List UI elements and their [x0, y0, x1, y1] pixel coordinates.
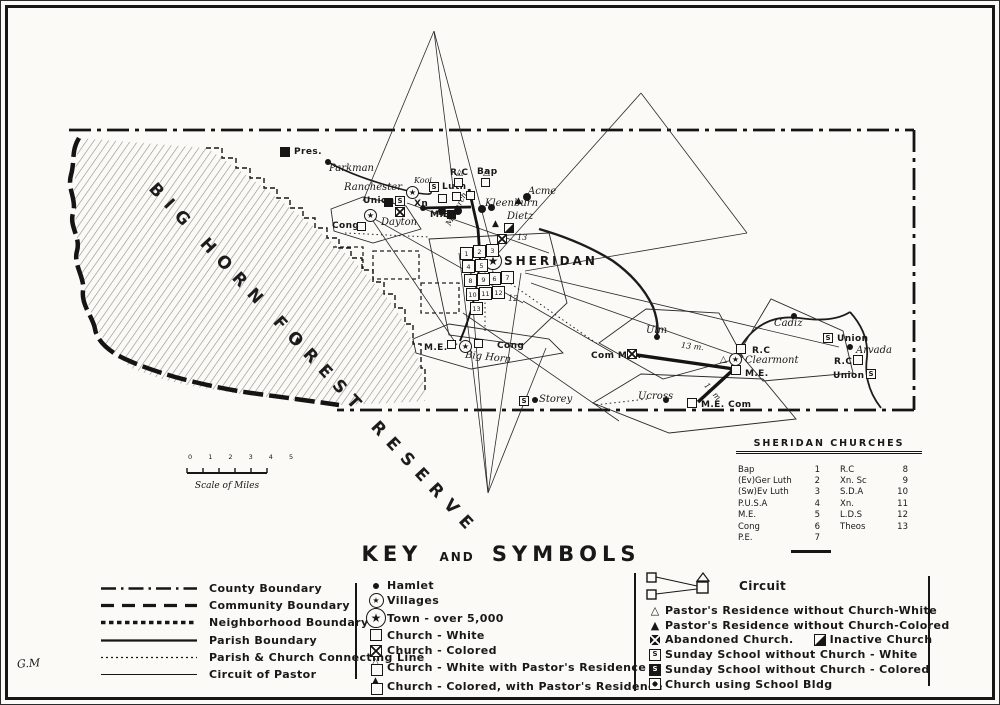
table-row: P.U.S.A4: [738, 498, 820, 509]
inactive-church-icon: [814, 634, 826, 646]
hamlet-dot-camp-4: [478, 205, 486, 213]
table-row: M.E.5: [738, 510, 820, 521]
sheridan-church-9: 9: [477, 273, 490, 286]
table-row: R.C8: [840, 464, 908, 475]
sheridan-church-8: 8: [464, 274, 477, 287]
circuit-label: Circuit: [739, 579, 786, 593]
churches-table-left-column: Bap1 (Ev)Ger Luth2 (Sw)Ev Luth3 P.U.S.A4…: [738, 464, 820, 544]
label-cadiz: Cadiz: [774, 318, 802, 329]
sunday-school-symbol-luth: S: [429, 182, 439, 192]
church-symbol-rc-arvada: [853, 355, 863, 365]
hamlet-dot-storey: [532, 397, 538, 403]
village-symbol-bighorn: ★: [459, 340, 472, 353]
church-colored-with-residence-icon: ▲: [370, 678, 382, 695]
label-acme: Acme: [528, 186, 556, 197]
legend-row-sunday-school-white: S Sunday School without Church - White: [645, 647, 950, 662]
legend-row-church-using-school: Church using School Bldg: [645, 677, 950, 692]
pastor-residence-icon-bap-top: △: [483, 169, 490, 178]
legend-row-abandoned-inactive: Abandoned Church. Inactive Church: [645, 633, 950, 648]
pastor-residence-icon-clearmont: △: [720, 356, 727, 365]
label-clearmont: Clearmont: [745, 355, 798, 366]
legend-row-church-colored: Church - Colored: [365, 643, 663, 658]
sheridan-churches-table: SHERIDAN CHURCHES Bap1 (Ev)Ger Luth2 (Sw…: [734, 438, 930, 459]
legend-row-villages: ★ Villages: [365, 593, 663, 608]
neighborhood-boundary-sample-icon: [99, 618, 199, 627]
church-symbol-cong-bighorn: [474, 339, 483, 348]
label-cong-dayton: Cong: [332, 221, 359, 231]
church-using-school-icon: [649, 678, 661, 690]
church-white-icon: [370, 629, 382, 641]
pastor-residence-icon-dietz: ▲: [492, 220, 499, 229]
churches-table-right-column: R.C8 Xn. Sc9 S.D.A10 Xn.11 L.D.S12 Theos…: [840, 464, 908, 532]
sunday-school-symbol-union-nw: S: [395, 196, 405, 206]
church-symbol-dayton-area-1: [384, 198, 393, 207]
church-symbol-me-bighorn: [447, 340, 456, 349]
label-sheridan: SHERIDAN: [504, 254, 598, 268]
table-row: Xn. Sc9: [840, 475, 908, 486]
sunday-school-symbol-arvada-n: S: [823, 333, 833, 343]
town-icon: ★: [366, 608, 386, 628]
key-title: KEY AND SYMBOLS: [1, 542, 1000, 566]
village-symbol-ranchester: ★: [406, 186, 419, 199]
village-symbol-dayton: ★: [364, 209, 377, 222]
legend-row-sunday-school-colored: S Sunday School without Church - Colored: [645, 662, 950, 677]
church-symbol-cong-dayton: [357, 222, 366, 231]
community-boundary-sample-icon: [99, 601, 199, 610]
church-symbol-colored-dietz: [497, 234, 507, 244]
scale-bar-line: [184, 467, 270, 476]
circuit-line-sample-icon: [99, 670, 199, 679]
hamlet-dot-camp-1: [420, 205, 426, 211]
sheridan-church-2: 2: [473, 245, 486, 258]
hamlet-dot-arvada: [847, 344, 853, 350]
label-union-arvada-s: Union: [833, 371, 864, 381]
legend-row-pastor-residence-white: △ Pastor's Residence without Church-Whit…: [645, 603, 950, 618]
table-row: (Ev)Ger Luth2: [738, 475, 820, 486]
church-symbol-kooi-3: [466, 191, 475, 200]
church-symbol-com-me-ulm: [627, 349, 637, 359]
label-pres: Pres.: [294, 147, 322, 157]
sheridan-church-13: 13: [470, 302, 483, 315]
abandoned-church-icon: [650, 635, 660, 645]
label-12: 12: [508, 294, 518, 303]
sheridan-church-3: 3: [486, 244, 499, 257]
church-symbol-me-clearmont: [731, 365, 741, 375]
map-sheet: Pres. Parkman Ranchester Union Kooi Cong…: [0, 0, 1000, 705]
legend-row-circuit: Circuit: [645, 569, 950, 603]
church-symbol-dayton-area-2: [395, 207, 405, 217]
key-title-and: AND: [439, 550, 474, 564]
hamlet-dot-kleenburn: [488, 204, 495, 211]
legend-places: Hamlet ★ Villages ★ Town - over 5,000 Ch…: [365, 578, 663, 696]
sheridan-church-10: 10: [466, 288, 479, 301]
sunday-school-symbol-arvada-s: S: [866, 369, 876, 379]
sheridan-church-4: 4: [462, 260, 475, 273]
church-symbol-camp: [447, 210, 456, 219]
church-symbol-kooi-2: [452, 192, 461, 201]
churches-table-title: SHERIDAN CHURCHES: [736, 438, 922, 454]
label-me-com: M.E. Com: [701, 400, 751, 410]
parish-boundary-sample-icon: [99, 636, 199, 645]
hamlet-dot-camp-2: [438, 207, 446, 215]
sunday-school-colored-icon: S: [649, 664, 661, 676]
village-icon: ★: [369, 593, 384, 608]
sunday-school-white-icon: S: [649, 649, 661, 661]
circuit-diagram-icon: [645, 570, 725, 602]
sheridan-church-12: 12: [492, 286, 505, 299]
label-me-bighorn: M.E.: [424, 343, 448, 353]
table-row: Theos13: [840, 521, 908, 532]
hamlet-dot-ulm: [654, 334, 660, 340]
label-13: 13: [517, 233, 527, 242]
sheridan-church-1: 1: [460, 247, 473, 260]
church-symbol-rc-top: [454, 178, 463, 187]
church-symbol-pres: [280, 147, 290, 157]
label-dayton: Dayton: [381, 217, 417, 228]
sheridan-church-11: 11: [479, 287, 492, 300]
legend-row-hamlet: Hamlet: [365, 578, 663, 593]
scale-label: Scale of Miles: [184, 481, 270, 491]
legend-symbols: Circuit △ Pastor's Residence without Chu…: [645, 569, 950, 692]
hamlet-dot-ucross: [663, 397, 669, 403]
legend-row-town: ★ Town - over 5,000: [365, 609, 663, 628]
sheridan-church-7: 7: [501, 271, 514, 284]
peak-mark-icon: ▲: [295, 336, 300, 343]
label-me-clearmont: M.E.: [745, 369, 769, 379]
sheridan-church-5: 5: [475, 259, 488, 272]
scale-bar: 0 1 2 3 4 5 Scale of Miles: [184, 453, 270, 491]
hamlet-dot-acme: [523, 193, 531, 201]
table-row: S.D.A10: [840, 487, 908, 498]
sunday-school-symbol-storey: S: [519, 396, 529, 406]
pastor-residence-white-icon: △: [651, 605, 659, 616]
label-rc-arvada: R.C: [834, 357, 852, 367]
legend-row-pastor-residence-colored: ▲ Pastor's Residence without Church-Colo…: [645, 618, 950, 633]
label-dietz: Dietz: [507, 211, 533, 222]
scale-ticks: 0 1 2 3 4 5: [188, 453, 270, 461]
label-union-arvada-n: Union: [837, 334, 868, 344]
legend-row-church-white-residence: △ Church - White with Pastor's Residence: [365, 658, 663, 677]
table-row: L.D.S12: [840, 510, 908, 521]
label-cong-bighorn: Cong: [497, 341, 524, 351]
table-row: Xn.11: [840, 498, 908, 509]
legend-row-church-colored-residence: ▲ Church - Colored, with Pastor's Reside…: [365, 677, 663, 696]
church-symbol-bap-top: [481, 178, 490, 187]
pastor-residence-icon-acme: ▲: [515, 197, 522, 206]
pastor-residence-colored-icon: ▲: [651, 620, 659, 631]
table-row: Bap1: [738, 464, 820, 475]
church-colored-icon: [370, 645, 382, 657]
hamlet-dot-parkman: [325, 159, 331, 165]
pastor-residence-icon-rc-top: △: [456, 169, 463, 178]
connecting-line-sample-icon: [99, 653, 199, 662]
key-title-symbols: SYMBOLS: [492, 542, 641, 566]
church-white-with-residence-icon: △: [370, 659, 382, 676]
legend-row-church-white: Church - White: [365, 628, 663, 643]
cartographer-initials: G.M: [17, 656, 41, 671]
table-row: (Sw)Ev Luth3: [738, 487, 820, 498]
label-ranchester: Ranchester: [344, 182, 402, 193]
label-storey: Storey: [539, 394, 572, 405]
county-boundary-sample-icon: [99, 584, 199, 593]
church-symbol-me-ucross: [687, 398, 697, 408]
table-row: Cong6: [738, 521, 820, 532]
circuit-lines: [363, 31, 839, 493]
label-parkman: Parkman: [329, 163, 374, 174]
key-title-key: KEY: [362, 542, 423, 566]
hamlet-dot-cadiz: [791, 313, 797, 319]
inactive-church-symbol-dietz: [504, 223, 514, 233]
hamlet-icon: [373, 583, 379, 589]
church-symbol-kooi-1: [438, 194, 447, 203]
